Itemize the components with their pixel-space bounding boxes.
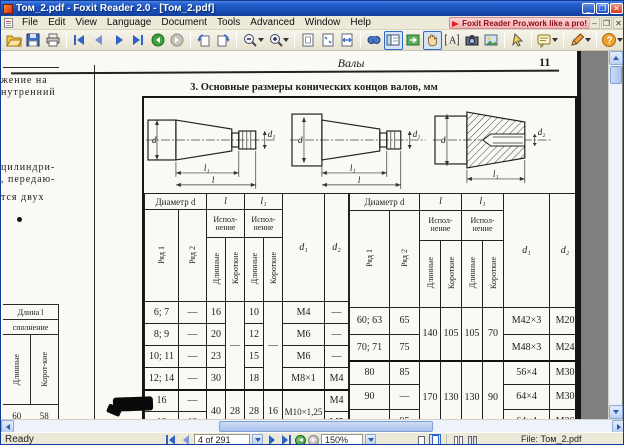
- table-row: 10; 11— 2315 M6—: [145, 346, 349, 368]
- file-name-label: File: Том_2.pdf: [521, 434, 582, 444]
- page-navigation: 4 of 291 150%: [164, 433, 376, 445]
- arrow-right-icon: [312, 438, 316, 442]
- table-row: 8; 9— 2012 M6—: [145, 324, 349, 346]
- svg-text:l₁: l₁: [493, 169, 499, 179]
- scroll-down-button[interactable]: [609, 405, 623, 419]
- margin-text: цилиндри-: [1, 162, 93, 173]
- status-text: Ready: [5, 434, 34, 445]
- svg-text:d: d: [441, 135, 446, 145]
- zoom-out-icon: [242, 32, 258, 48]
- fit-width-icon: [339, 32, 355, 48]
- menu-window[interactable]: Window: [300, 16, 346, 29]
- table-row: 16— 40 28 28 16 M10×1,25 M4: [145, 390, 349, 412]
- svg-text:l₁: l₁: [204, 163, 210, 173]
- zoom-out-dropdown[interactable]: [258, 38, 264, 42]
- margin-bullet: [17, 217, 22, 222]
- margin-text: тся двух: [1, 192, 93, 203]
- previous-page-button[interactable]: [89, 31, 109, 50]
- page-edge-shadow: [577, 51, 581, 419]
- continuous-page-button[interactable]: [429, 434, 441, 445]
- col-header-short: Короткие: [447, 257, 456, 289]
- col-header-long: Длинные: [468, 257, 477, 288]
- drawings-row: d d₁ l₁ l: [144, 98, 575, 193]
- menu-bar: File Edit View Language Document Tools A…: [1, 16, 624, 30]
- first-page-button[interactable]: [164, 434, 177, 445]
- find-button[interactable]: [364, 31, 384, 50]
- zoom-dropdown[interactable]: [365, 434, 376, 445]
- mini-table-header: Длина l: [3, 305, 58, 320]
- continuous-facing-icon: [468, 436, 472, 445]
- drawing-tool-icon: [569, 32, 585, 48]
- export-icon: [405, 32, 421, 48]
- continuous-page-icon: [432, 435, 439, 445]
- open-button[interactable]: [4, 31, 24, 50]
- margin-text: жение на: [1, 75, 93, 86]
- col-header-diameter: Диаметр d: [145, 194, 207, 210]
- rotate-left-button[interactable]: [194, 31, 214, 50]
- select-text-icon: A: [444, 32, 460, 48]
- print-icon: [45, 32, 61, 48]
- select-annotation-icon: [510, 32, 526, 48]
- status-bar: Ready 4 of 291 150% File: Том_2.pdf: [1, 432, 624, 445]
- col-header-l1: l₁: [462, 194, 504, 211]
- fit-width-button[interactable]: [337, 31, 357, 50]
- svg-text:?: ?: [607, 36, 613, 47]
- previous-view-button[interactable]: [295, 435, 306, 445]
- col-header-version: Испол-нение: [462, 210, 504, 240]
- single-page-button[interactable]: [415, 434, 427, 445]
- page-dropdown[interactable]: [252, 434, 263, 445]
- menu-document[interactable]: Document: [156, 16, 212, 29]
- page-layout-controls: [415, 434, 478, 445]
- first-page-button[interactable]: [70, 31, 90, 50]
- col-header-l: l: [420, 194, 462, 211]
- facing-page-icon: [454, 436, 458, 445]
- child-restore-button[interactable]: ❐: [601, 17, 612, 29]
- col-header-l1: l₁: [245, 194, 283, 210]
- app-icon: [3, 4, 13, 14]
- scroll-up-button[interactable]: [609, 51, 623, 65]
- arrow-left-icon: [299, 438, 303, 442]
- find-icon: [366, 32, 382, 48]
- title-bar: Том_2.pdf - Foxit Reader 2.0 - [Том_2.pd…: [1, 1, 624, 16]
- shaft-drawing-long-1: d d₁ l₁ l: [144, 98, 288, 193]
- next-page-icon: [111, 32, 127, 48]
- col-header-long: Длинные: [426, 257, 435, 288]
- print-button[interactable]: [43, 31, 63, 50]
- margin-rule: [3, 67, 59, 68]
- pdf-page: жение на нутренний цилиндри- , передаю- …: [1, 51, 581, 419]
- menu-language[interactable]: Language: [102, 16, 157, 29]
- table-row: 6; 7— 16 — 10 — M4—: [145, 302, 349, 324]
- svg-text:l₁: l₁: [350, 163, 356, 173]
- save-button[interactable]: [24, 31, 44, 50]
- last-page-icon: [130, 32, 146, 48]
- mini-table-subheader: сполнение: [3, 320, 58, 335]
- col-header-row2: Ряд 2: [189, 246, 197, 264]
- fit-page-button[interactable]: [318, 31, 338, 50]
- rotate-right-button[interactable]: [214, 31, 234, 50]
- table-row: 8085 170 130 130 90 56×4M30: [350, 361, 581, 385]
- table-frame: d d₁ l₁ l: [142, 96, 577, 419]
- arrow-left-icon: [6, 424, 10, 430]
- image-icon: [483, 32, 499, 48]
- open-icon: [6, 32, 22, 48]
- window-title: Том_2.pdf - Foxit Reader 2.0 - [Том_2.pd…: [16, 3, 214, 14]
- svg-text:l: l: [212, 175, 215, 185]
- hand-tool-icon: [424, 32, 440, 48]
- col-header-diameter: Диаметр d: [350, 194, 420, 211]
- page-number: 11: [539, 55, 550, 70]
- help-dropdown[interactable]: [617, 38, 623, 42]
- chevron-down-icon: [255, 438, 261, 442]
- svg-text:d₂: d₂: [538, 127, 546, 137]
- mini-table-short: Корот-кие: [40, 352, 49, 387]
- col-header-row2: Ряд 2: [401, 249, 409, 267]
- toolbar: A ?: [1, 30, 624, 51]
- ink-smudge: [113, 396, 153, 411]
- menu-view[interactable]: View: [70, 16, 102, 29]
- fit-page-icon: [320, 32, 336, 48]
- minimize-button[interactable]: _: [582, 3, 595, 14]
- note-tool-icon: [536, 32, 552, 48]
- chevron-down-icon: [368, 438, 374, 442]
- vertical-scrollbar[interactable]: [608, 51, 622, 419]
- previous-page-button[interactable]: [179, 434, 192, 445]
- col-header-version: Испол-нение: [245, 210, 283, 238]
- select-text-button[interactable]: A: [442, 31, 462, 50]
- col-header-row1: Ряд 1: [158, 246, 166, 264]
- rotate-right-icon: [215, 32, 231, 48]
- margin-text: , передаю-: [1, 174, 93, 185]
- shaft-drawing-short-internal: d d₂ l₁: [431, 98, 575, 193]
- page-indicator[interactable]: 4 of 291: [194, 434, 250, 445]
- col-header-version: Испол-нение: [207, 210, 245, 238]
- svg-text:d₁: d₁: [268, 129, 276, 139]
- previous-view-button[interactable]: [148, 31, 168, 50]
- next-view-icon: [169, 32, 185, 48]
- col-header-long: Длинные: [250, 253, 259, 284]
- snapshot-icon: [464, 32, 480, 48]
- last-page-button[interactable]: [280, 434, 293, 445]
- table-caption: 3. Основные размеры конических концов ва…: [149, 82, 479, 93]
- menu-help[interactable]: Help: [345, 16, 376, 29]
- horizontal-scrollbar[interactable]: [1, 419, 624, 432]
- zoom-in-icon: [268, 32, 284, 48]
- margin-text: нутренний: [1, 87, 93, 98]
- rotate-left-icon: [196, 32, 212, 48]
- col-header-d1: d₁: [283, 194, 325, 302]
- page-header: Валы: [146, 56, 556, 71]
- first-page-icon: [71, 32, 87, 48]
- child-minimize-button[interactable]: –: [589, 17, 600, 29]
- svg-text:d: d: [298, 135, 303, 145]
- menu-file[interactable]: File: [17, 16, 43, 29]
- last-page-button[interactable]: [128, 31, 148, 50]
- menu-tools[interactable]: Tools: [212, 16, 245, 29]
- col-header-short: Короткие: [231, 252, 240, 284]
- actual-size-icon: [300, 32, 316, 48]
- arrow-up-icon: [613, 56, 619, 60]
- next-page-button[interactable]: [109, 31, 129, 50]
- svg-text:l: l: [358, 175, 361, 185]
- zoom-level[interactable]: 150%: [321, 434, 363, 445]
- svg-text:A: A: [449, 36, 457, 47]
- maximize-button[interactable]: ❐: [596, 3, 609, 14]
- dimensions-table-left: Диаметр d l l₁ d₁ d₂ Ряд 1 Ряд 2 Испол-н…: [144, 193, 349, 419]
- col-header-version: Испол-нение: [420, 210, 462, 240]
- foxit-reader-window: Том_2.pdf - Foxit Reader 2.0 - [Том_2.pd…: [0, 0, 624, 445]
- single-page-icon: [418, 436, 425, 445]
- table-row: 60; 6365 140 105 105 70 M42×3M20: [350, 308, 581, 334]
- table-row: 12; 14— 3018 M8×1M4: [145, 368, 349, 390]
- help-icon: ?: [601, 32, 617, 48]
- zoom-in-dropdown[interactable]: [283, 38, 289, 42]
- document-icon: [4, 18, 13, 28]
- shaft-drawing-long-2: d d₁ l₁ l: [288, 98, 432, 193]
- previous-view-icon: [150, 32, 166, 48]
- continuous-facing-button[interactable]: [466, 434, 478, 445]
- previous-page-icon: [91, 32, 107, 48]
- arrow-right-icon: [617, 424, 621, 430]
- mini-table-value: 60: [3, 405, 31, 419]
- col-header-short: Короткие: [489, 257, 498, 289]
- child-close-button[interactable]: ✕: [613, 17, 624, 29]
- document-area[interactable]: жение на нутренний цилиндри- , передаю- …: [1, 51, 624, 419]
- close-button[interactable]: ✕: [610, 3, 623, 14]
- col-header-row1: Ряд 1: [366, 249, 374, 267]
- image-button[interactable]: [481, 31, 501, 50]
- export-button[interactable]: [403, 31, 423, 50]
- menu-edit[interactable]: Edit: [43, 16, 70, 29]
- navigation-panel-button[interactable]: [384, 31, 404, 50]
- horizontal-scroll-thumb[interactable]: [219, 421, 433, 432]
- facing-page-button[interactable]: [452, 434, 464, 445]
- snapshot-button[interactable]: [462, 31, 482, 50]
- col-header-d1: d₁: [504, 194, 550, 308]
- vertical-scroll-thumb[interactable]: [610, 66, 622, 84]
- mini-table-value: 58: [31, 405, 59, 419]
- col-header-long: Длинные: [212, 253, 221, 284]
- menu-advanced[interactable]: Advanced: [245, 16, 299, 29]
- promo-banner[interactable]: Foxit Reader Pro,work like a pro!: [449, 17, 592, 29]
- column-divider: [94, 65, 95, 419]
- col-header-d2: d₂: [325, 194, 349, 302]
- hand-tool-button[interactable]: [423, 31, 443, 50]
- svg-text:d₁: d₁: [412, 129, 420, 139]
- actual-size-button[interactable]: [298, 31, 318, 50]
- mini-table-long: Длинные: [12, 354, 21, 385]
- save-icon: [25, 32, 41, 48]
- navigation-panel-icon: [385, 32, 401, 48]
- dimensions-table-right: Диаметр d l l₁ d₁ d₂ Ряд 1 Ряд 2 Испол-н…: [349, 193, 581, 419]
- col-header-d2: d₂: [550, 194, 581, 308]
- col-header-short: Короткие: [269, 252, 278, 284]
- next-page-button[interactable]: [265, 434, 278, 445]
- col-header-l: l: [207, 194, 245, 210]
- drawing-tool-dropdown[interactable]: [585, 38, 591, 42]
- margin-mini-table: Длина l сполнение Длинные Корот-кие 60 5…: [3, 304, 59, 419]
- note-tool-dropdown[interactable]: [552, 38, 558, 42]
- next-view-button[interactable]: [308, 435, 319, 445]
- select-annotation-button[interactable]: [508, 31, 528, 50]
- svg-text:d: d: [152, 135, 157, 145]
- next-view-button[interactable]: [168, 31, 188, 50]
- arrow-down-icon: [613, 410, 619, 414]
